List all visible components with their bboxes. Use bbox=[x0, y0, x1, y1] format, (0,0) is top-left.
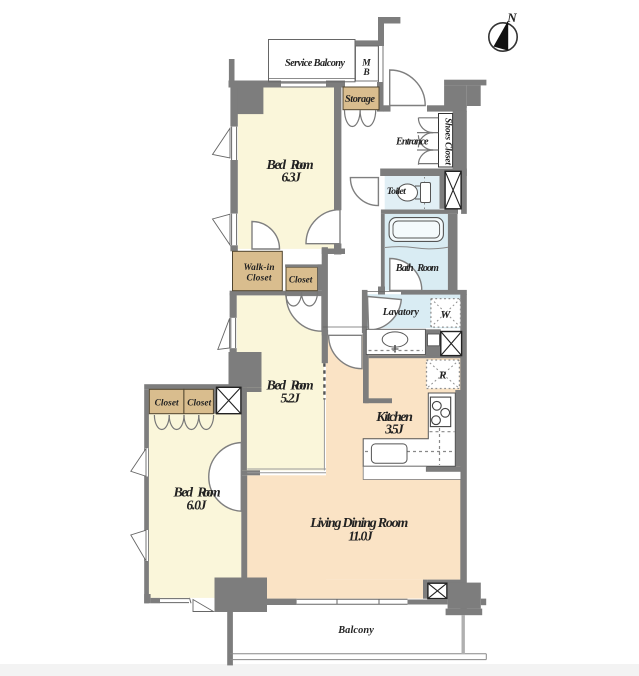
svg-text:W: W bbox=[441, 309, 452, 321]
svg-text:Lavatory: Lavatory bbox=[382, 307, 420, 318]
svg-text:Balcony: Balcony bbox=[337, 625, 374, 636]
svg-text:Closet: Closet bbox=[247, 273, 272, 283]
svg-text:Bath: Bath bbox=[395, 263, 414, 274]
svg-text:Closet: Closet bbox=[187, 399, 211, 409]
svg-text:M: M bbox=[361, 59, 371, 69]
svg-text:Service Balcony: Service Balcony bbox=[285, 58, 345, 69]
svg-text:Entrance: Entrance bbox=[395, 137, 429, 148]
svg-text:6.0J: 6.0J bbox=[187, 498, 208, 513]
svg-text:Room: Room bbox=[416, 263, 439, 274]
svg-text:Closet: Closet bbox=[155, 399, 179, 409]
svg-text:Walk-in: Walk-in bbox=[244, 263, 275, 273]
svg-text:Closet: Closet bbox=[289, 275, 313, 285]
svg-text:Shoes Closet: Shoes Closet bbox=[443, 118, 453, 165]
svg-text:3.5J: 3.5J bbox=[384, 422, 405, 437]
svg-text:5.2J: 5.2J bbox=[281, 391, 302, 406]
svg-text:Storage: Storage bbox=[345, 94, 375, 105]
svg-text:B: B bbox=[362, 68, 369, 78]
svg-text:N: N bbox=[506, 10, 517, 25]
svg-text:R: R bbox=[438, 370, 446, 382]
svg-text:Toilet: Toilet bbox=[387, 186, 406, 197]
svg-text:6.3J: 6.3J bbox=[282, 170, 303, 185]
svg-text:11.0J: 11.0J bbox=[348, 529, 374, 544]
